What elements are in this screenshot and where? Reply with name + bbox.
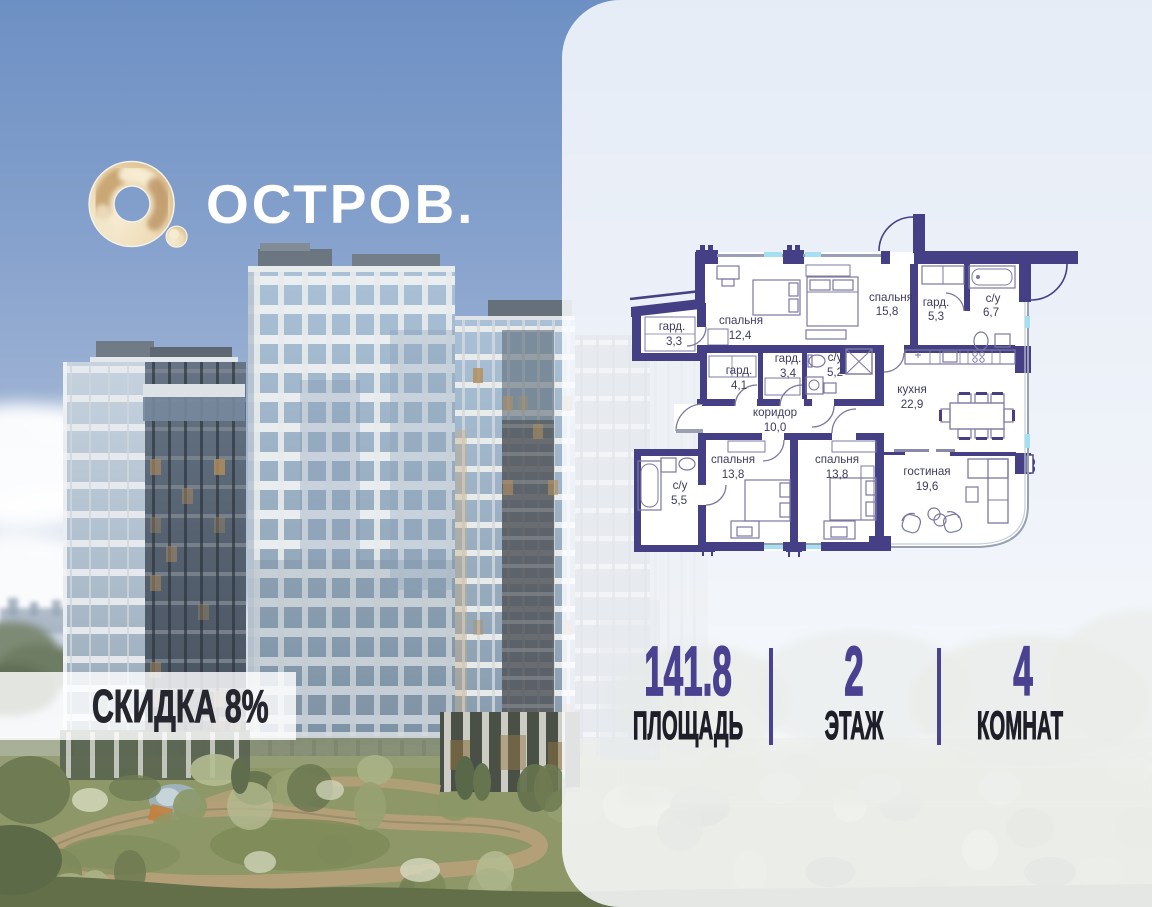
svg-text:коридор: коридор xyxy=(753,406,797,419)
svg-text:гард.: гард. xyxy=(659,320,686,333)
svg-text:с/у: с/у xyxy=(828,351,843,364)
svg-text:5,5: 5,5 xyxy=(671,494,687,507)
svg-text:гард.: гард. xyxy=(726,364,753,377)
svg-text:6,7: 6,7 xyxy=(983,306,999,319)
svg-text:гард.: гард. xyxy=(775,352,802,365)
svg-text:13,8: 13,8 xyxy=(826,468,849,481)
svg-text:с/у: с/у xyxy=(673,479,688,492)
svg-text:кухня: кухня xyxy=(897,383,926,396)
svg-text:спальня: спальня xyxy=(719,314,763,327)
svg-text:22,9: 22,9 xyxy=(901,398,924,411)
svg-text:3,3: 3,3 xyxy=(666,335,682,348)
svg-text:13,8: 13,8 xyxy=(722,468,745,481)
svg-text:4,1: 4,1 xyxy=(731,379,747,392)
svg-text:спальня: спальня xyxy=(711,453,755,466)
svg-text:спальня: спальня xyxy=(815,453,859,466)
svg-text:10,0: 10,0 xyxy=(764,421,787,434)
svg-text:спальня: спальня xyxy=(869,291,913,304)
svg-text:19,6: 19,6 xyxy=(916,480,939,493)
svg-text:гард.: гард. xyxy=(923,296,950,309)
svg-text:с/у: с/у xyxy=(986,292,1001,305)
svg-text:15,8: 15,8 xyxy=(876,305,899,318)
svg-text:12,4: 12,4 xyxy=(729,329,752,342)
svg-text:5,2: 5,2 xyxy=(827,366,843,379)
svg-text:3,4: 3,4 xyxy=(780,367,797,380)
svg-text:гостиная: гостиная xyxy=(903,465,950,478)
svg-text:5,3: 5,3 xyxy=(928,310,944,323)
